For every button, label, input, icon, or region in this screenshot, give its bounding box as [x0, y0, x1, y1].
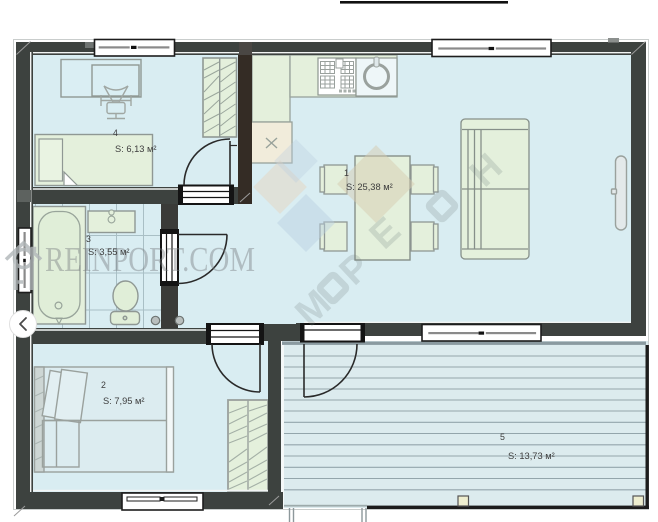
- svg-text:3: 3: [86, 234, 91, 244]
- svg-text:S: 6,13 м²: S: 6,13 м²: [115, 144, 157, 154]
- svg-text:5: 5: [500, 432, 505, 442]
- svg-text:2: 2: [101, 380, 106, 390]
- svg-text:S: 13,73 м²: S: 13,73 м²: [508, 451, 555, 461]
- svg-text:REINPORT.COM: REINPORT.COM: [45, 240, 255, 279]
- svg-text:S: 25,38 м²: S: 25,38 м²: [346, 182, 393, 192]
- svg-text:S: 7,95 м²: S: 7,95 м²: [103, 396, 145, 406]
- svg-text:S: 3,55 м²: S: 3,55 м²: [88, 247, 130, 257]
- svg-text:4: 4: [113, 128, 118, 138]
- svg-text:1: 1: [344, 168, 349, 178]
